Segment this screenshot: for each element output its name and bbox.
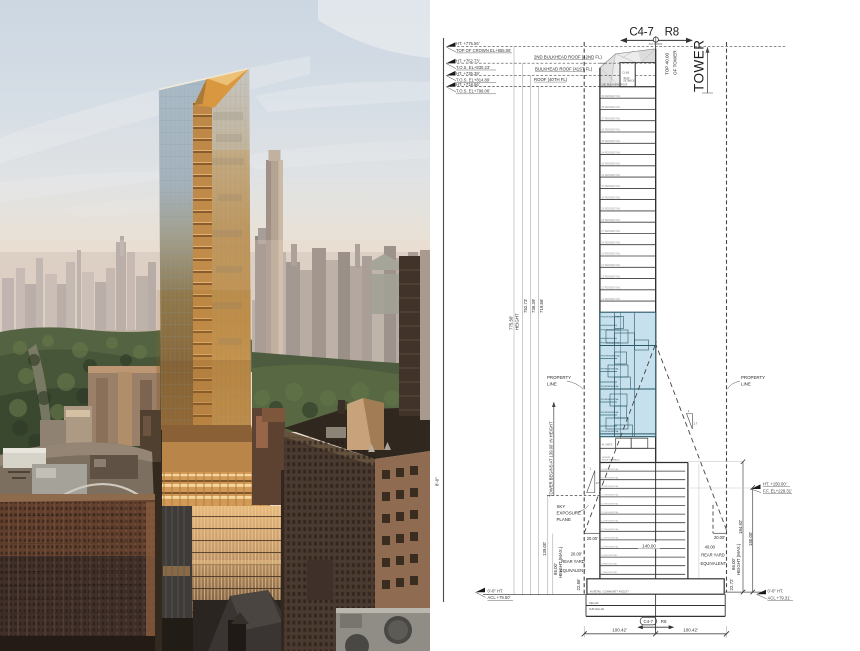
svg-text:20 RESIDENTIAL: 20 RESIDENTIAL [601,468,619,471]
svg-text:17 RESIDENTIAL: 17 RESIDENTIAL [601,494,619,497]
svg-text:BULKHEAD ROOF (41ST FL): BULKHEAD ROOF (41ST FL) [535,67,593,72]
svg-text:24 RESIDENTIAL: 24 RESIDENTIAL [601,264,621,267]
svg-text:7 RESIDENTIAL: 7 RESIDENTIAL [601,571,618,574]
svg-text:19 RESIDENTIAL: 19 RESIDENTIAL [601,477,619,480]
svg-text:10 RESIDENTIAL: 10 RESIDENTIAL [601,545,619,548]
svg-text:11 RESIDENTIAL: 11 RESIDENTIAL [601,537,619,540]
svg-text:T.O.S. EL+799.06': T.O.S. EL+799.06' [456,89,490,94]
svg-text:CELLAR: CELLAR [589,602,599,605]
svg-text:T.O.S. EL+830.23': T.O.S. EL+830.23' [456,65,490,70]
svg-text:PH RESIDENTIAL: PH RESIDENTIAL [601,368,620,371]
svg-text:21 RESIDENTIAL: 21 RESIDENTIAL [601,298,621,301]
svg-text:CL-B6: CL-B6 [622,72,629,75]
svg-text:PH RESIDENTIAL: PH RESIDENTIAL [601,430,620,433]
svg-text:0'-0" HT.: 0'-0" HT. [488,588,504,593]
svg-text:LINE: LINE [741,381,751,386]
svg-text:PROPERTY: PROPERTY [741,375,765,380]
svg-text:40.00: 40.00 [705,544,716,549]
svg-text:12 RESIDENTIAL: 12 RESIDENTIAL [601,528,619,531]
svg-text:34 RESIDENTIAL: 34 RESIDENTIAL [601,151,621,154]
svg-text:32 RESIDENTIAL: 32 RESIDENTIAL [601,174,621,177]
svg-text:139.00': 139.00' [542,542,547,556]
svg-text:735.39': 735.39' [531,299,536,313]
svg-text:TOWER: TOWER [692,40,707,93]
svg-text:PLANE: PLANE [557,517,571,522]
svg-text:23 RESIDENTIAL: 23 RESIDENTIAL [601,275,621,278]
svg-text:OF TOWER: OF TOWER [673,50,678,75]
svg-text:C4-7: C4-7 [629,27,653,39]
svg-text:100.42': 100.42' [683,628,698,633]
svg-text:C4-7: C4-7 [644,619,654,624]
svg-text:LINE: LINE [547,381,557,386]
svg-text:22.56': 22.56' [576,579,581,591]
svg-text:TOWER BEGINS AT 139.00' IN HEI: TOWER BEGINS AT 139.00' IN HEIGHT [548,421,553,497]
svg-text:752.73': 752.73' [523,299,528,313]
svg-text:PROPERTY: PROPERTY [547,375,571,380]
svg-text:100.42': 100.42' [612,628,627,633]
svg-text:SETBACK: SETBACK [623,80,635,83]
svg-text:HEIGHT: HEIGHT [514,313,519,330]
svg-text:HT. +718.56': HT. +718.56' [456,82,480,87]
svg-text:26 RESIDENTIAL: 26 RESIDENTIAL [601,241,621,244]
svg-text:PH4 RESIDENTIAL: PH4 RESIDENTIAL [601,316,621,319]
svg-text:HT. +150.00': HT. +150.00' [763,481,787,486]
svg-text:35 RESIDENTIAL: 35 RESIDENTIAL [601,140,621,143]
svg-text:36 RESIDENTIAL: 36 RESIDENTIAL [601,129,621,132]
svg-text:22.72': 22.72' [729,579,734,591]
svg-text:25 RESIDENTIAL: 25 RESIDENTIAL [601,253,621,256]
svg-text:PH2 RESIDENTIAL: PH2 RESIDENTIAL [601,342,621,345]
svg-text:PH1 RESIDENTIAL: PH1 RESIDENTIAL [601,355,621,358]
svg-text:PH3 RESIDENTIAL: PH3 RESIDENTIAL [601,329,621,332]
svg-text:EXPOSURE: EXPOSURE [557,511,581,516]
svg-text:ACL +79.50': ACL +79.50' [488,595,511,600]
svg-text:HT. +752.73': HT. +752.73' [456,58,480,63]
svg-text:28 RESIDENTIAL: 28 RESIDENTIAL [601,219,621,222]
svg-text:2.7: 2.7 [596,481,600,485]
svg-text:8 RESIDENTIAL: 8 RESIDENTIAL [601,563,618,566]
svg-text:F.F. EL+229.31': F.F. EL+229.31' [763,488,792,493]
svg-text:TOP OF CROWN EL+855.06': TOP OF CROWN EL+855.06' [456,48,511,53]
svg-text:2.7: 2.7 [694,422,698,426]
svg-text:15 RESIDENTIAL: 15 RESIDENTIAL [601,511,619,514]
svg-text:R8: R8 [665,27,679,39]
svg-text:HT. +775.56': HT. +775.56' [456,41,480,46]
svg-text:20.00': 20.00' [587,536,598,541]
svg-text:27 RESIDENTIAL: 27 RESIDENTIAL [601,230,621,233]
svg-text:2ND BULKHEAD ROOF (42ND FL): 2ND BULKHEAD ROOF (42ND FL) [534,55,602,60]
svg-text:R8: R8 [661,619,667,624]
svg-text:HEIGHT (MAX.): HEIGHT (MAX.) [736,543,741,575]
svg-text:EQUIVALENT: EQUIVALENT [700,561,726,566]
svg-text:14 RESIDENTIAL: 14 RESIDENTIAL [601,520,619,523]
svg-text:8'-0": 8'-0" [435,477,440,486]
svg-text:20.00': 20.00' [714,535,725,540]
svg-text:SUB-CELLAR: SUB-CELLAR [589,608,604,611]
svg-text:41 UNITS: 41 UNITS [602,444,613,447]
svg-text:31 RESIDENTIAL: 31 RESIDENTIAL [601,185,621,188]
svg-text:40 RETAIL / COMMUNITY FACILIT: 40 RETAIL / COMMUNITY FACILITY [590,591,630,594]
svg-text:ACL +79.31': ACL +79.31' [768,596,791,601]
svg-text:775.56': 775.56' [508,316,513,330]
svg-text:37 RESIDENTIAL: 37 RESIDENTIAL [601,117,621,120]
svg-text:719.56': 719.56' [539,299,544,313]
svg-text:2ND BULKHEAD ROOF: 2ND BULKHEAD ROOF [602,84,628,87]
svg-text:18 RESIDENTIAL: 18 RESIDENTIAL [601,485,619,488]
svg-text:ZLP KB9862: ZLP KB9862 [649,43,663,46]
svg-text:20.00': 20.00' [571,552,582,557]
svg-text:0'-0" HT.: 0'-0" HT. [768,589,784,594]
svg-text:TOP 40.00: TOP 40.00 [665,53,670,75]
svg-text:40TH FL: 40TH FL [602,457,611,459]
svg-text:REAR YARD: REAR YARD [701,552,725,557]
svg-text:150.00': 150.00' [748,532,753,546]
svg-text:33 RESIDENTIAL: 33 RESIDENTIAL [601,163,621,166]
svg-text:22 RESIDENTIAL: 22 RESIDENTIAL [601,287,621,290]
svg-text:38 RESIDENTIAL: 38 RESIDENTIAL [601,106,621,109]
svg-text:39 RESIDENTIAL: 39 RESIDENTIAL [601,95,621,98]
svg-text:29 RESIDENTIAL: 29 RESIDENTIAL [601,208,621,211]
svg-text:HT. +735.39': HT. +735.39' [456,71,480,76]
svg-text:1: 1 [688,409,690,413]
svg-text:EQUIVALENT: EQUIVALENT [560,568,586,573]
svg-text:SKY: SKY [557,504,566,509]
svg-text:PH RESIDENTIAL: PH RESIDENTIAL [601,411,620,414]
svg-text:9 RESIDENTIAL: 9 RESIDENTIAL [601,554,618,557]
svg-text:184.92': 184.92' [738,520,743,534]
svg-text:30 RESIDENTIAL: 30 RESIDENTIAL [601,196,621,199]
svg-text:140.00: 140.00 [642,543,656,548]
svg-text:1: 1 [590,467,592,471]
svg-text:ROOF (40TH FL): ROOF (40TH FL) [534,77,568,82]
svg-text:PH RESIDENTIAL: PH RESIDENTIAL [601,398,620,401]
svg-text:REAR YARD: REAR YARD [561,559,585,564]
svg-text:16 RESIDENTIAL: 16 RESIDENTIAL [601,502,619,505]
svg-text:PH RESIDENTIAL: PH RESIDENTIAL [601,385,620,388]
